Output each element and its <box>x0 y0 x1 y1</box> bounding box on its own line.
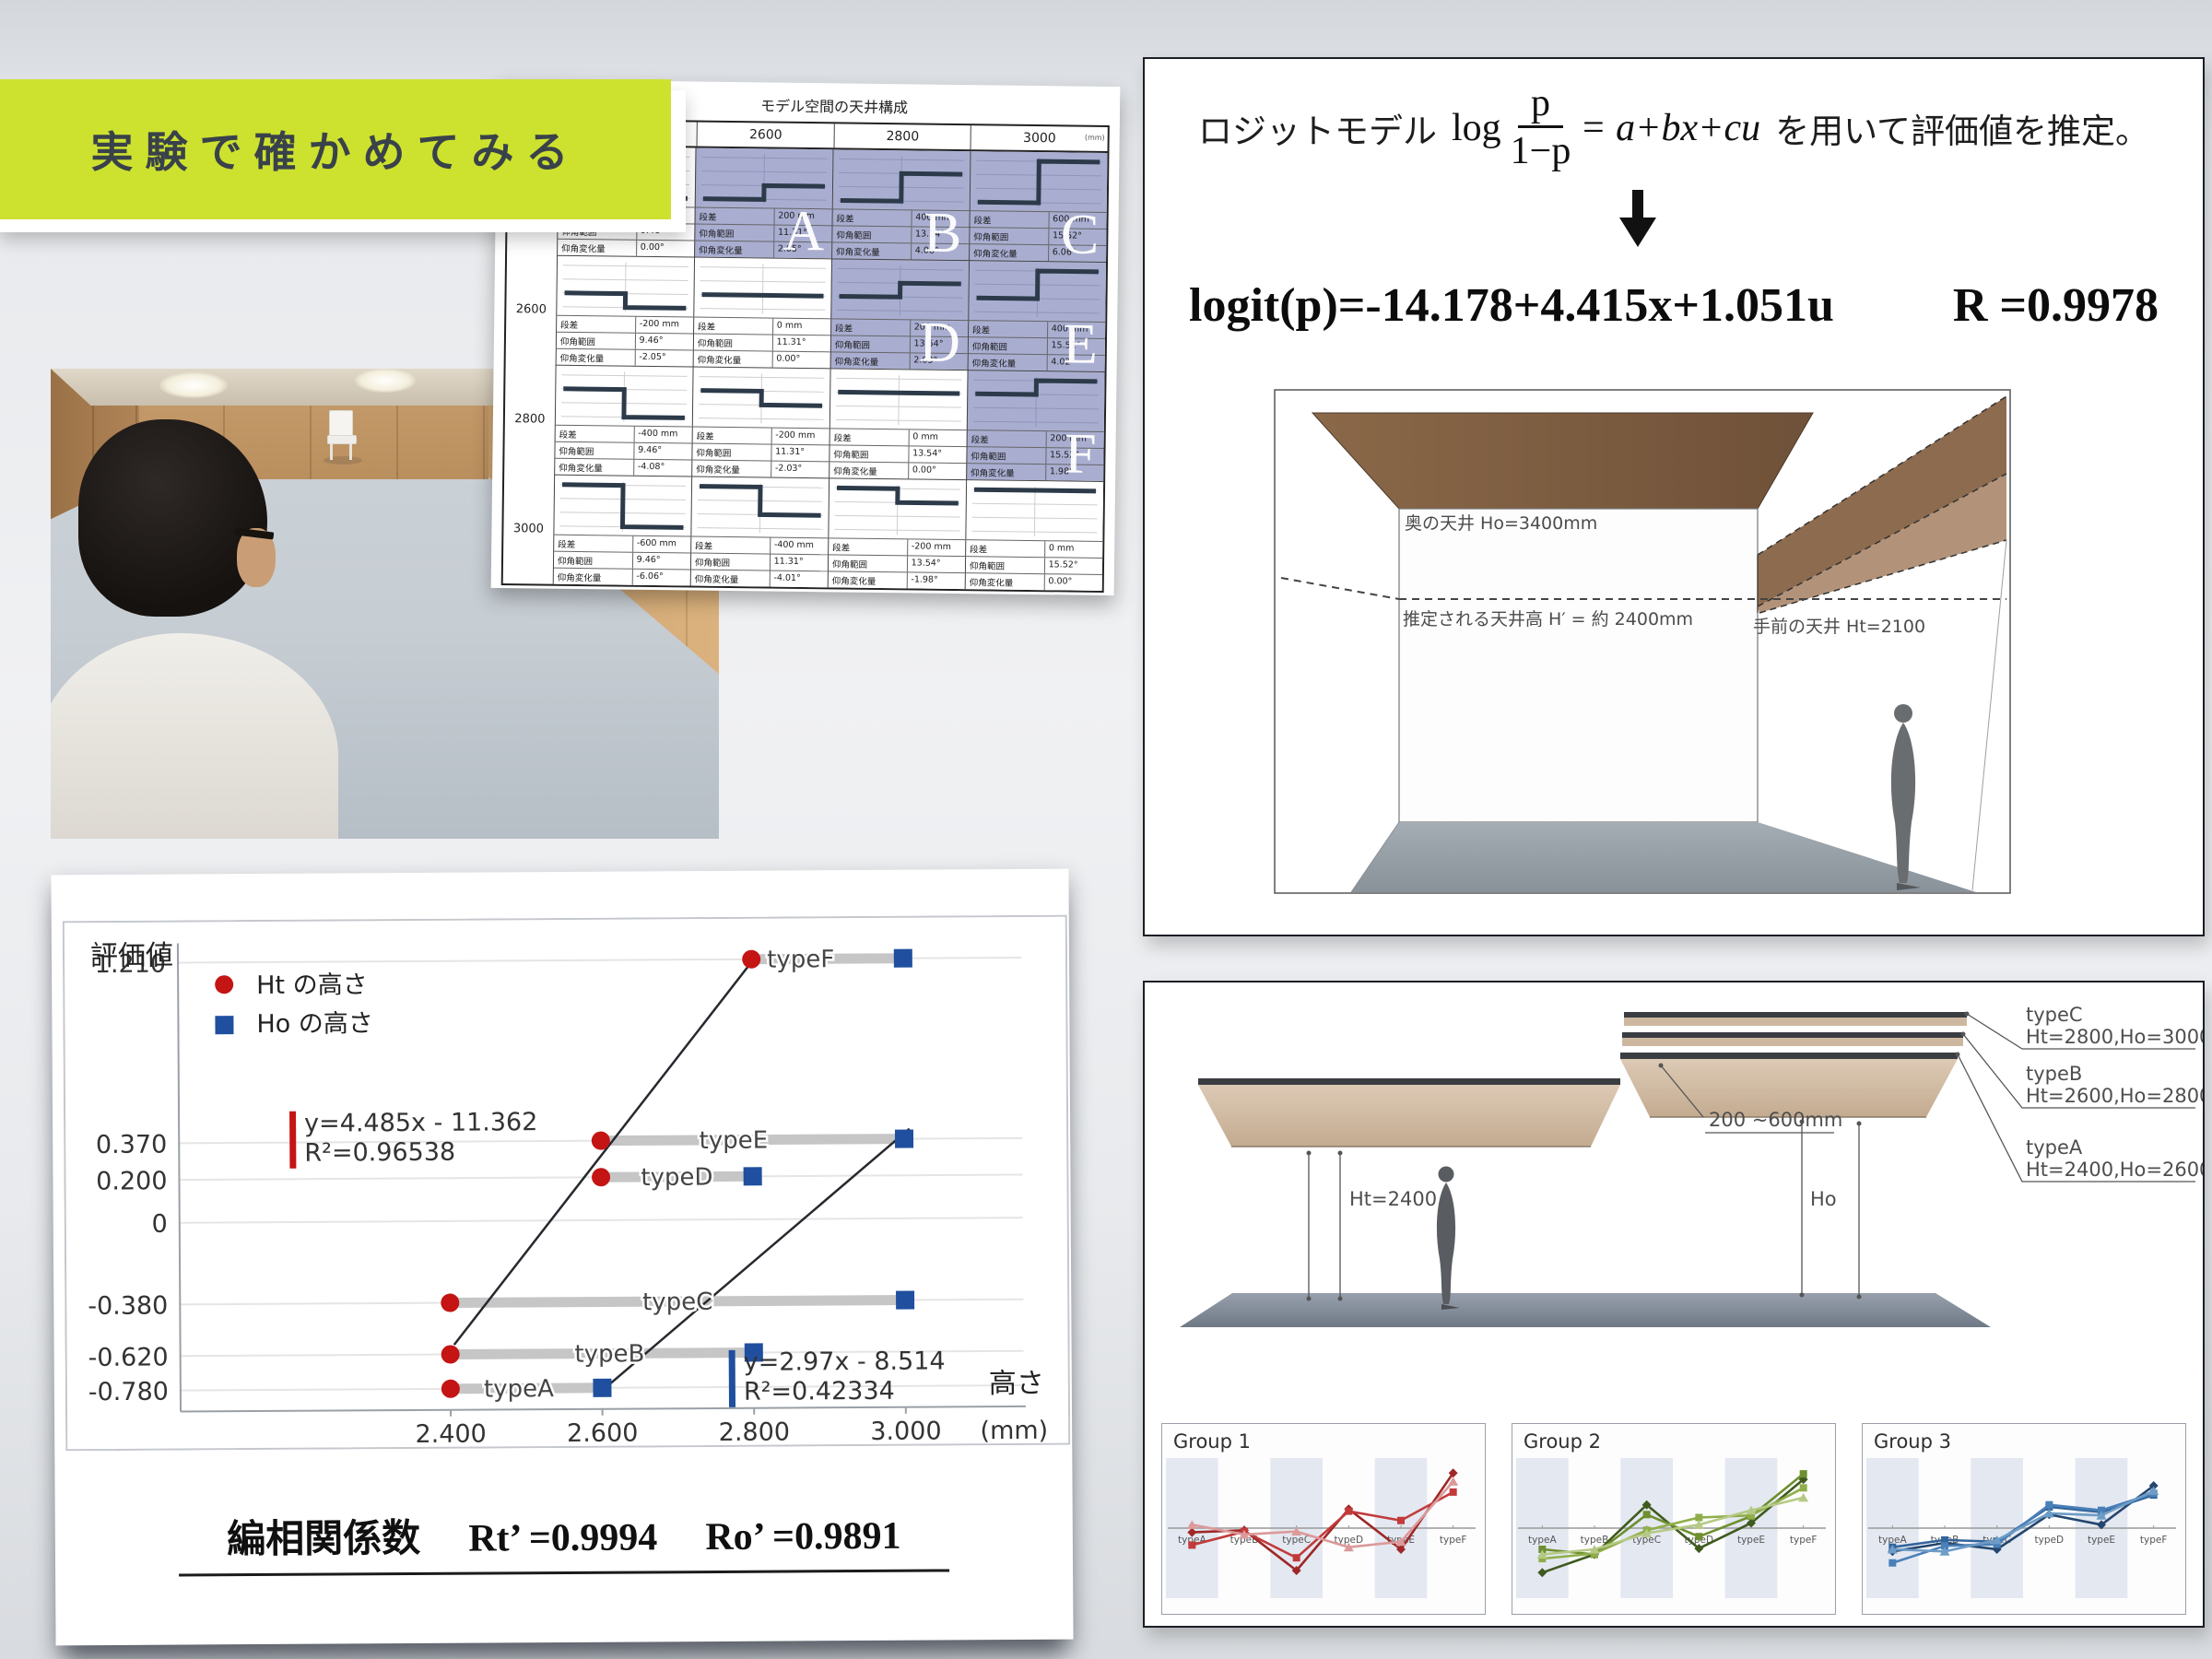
type-letter-F: F <box>1065 425 1097 482</box>
svg-text:typeD: typeD <box>2035 1535 2065 1546</box>
group-2-title: Group 2 <box>1512 1424 1835 1453</box>
row-header-3000: 3000 <box>503 474 554 584</box>
ho-marker-typeA <box>593 1379 611 1397</box>
svg-text:3.000: 3.000 <box>870 1417 941 1445</box>
ht-marker-typeD <box>592 1168 610 1186</box>
group-1-title: Group 1 <box>1162 1424 1485 1453</box>
low-ceiling-edge <box>1198 1078 1620 1085</box>
ceiling-cell: 段差-200 mm仰角範囲13.54°仰角変化量-1.98° <box>828 477 966 589</box>
series-label-typeB: typeB <box>574 1340 644 1368</box>
col-header-3000: 3000(mm) <box>971 125 1108 151</box>
measure-lines <box>1309 1121 1859 1300</box>
section-person-silhouette <box>1437 1167 1460 1311</box>
ceiling-cell: 段差-400 mm仰角範囲11.31°仰角変化量-4.01° <box>690 476 829 587</box>
ceiling-cell-D: 段差200 mm仰角範囲13.54°仰角変化量2.03°D <box>830 258 969 370</box>
ceiling-cell-C: 段差600 mm仰角範囲15.52°仰角変化量6.06°C <box>969 151 1107 262</box>
logit-equation-row: logit(p)=-14.178+4.415x+1.051u R =0.9978 <box>1189 278 2159 333</box>
ht-marker-typeE <box>592 1132 610 1150</box>
page-title: 実験で確かめてみる <box>91 119 581 180</box>
svg-text:0: 0 <box>151 1210 167 1239</box>
type-label-b-detail: Ht=2600,Ho=2800 <box>2026 1085 2203 1107</box>
ceiling-cell-E: 段差400 mm仰角範囲15.52°仰角変化量4.02°E <box>968 260 1106 371</box>
legend-ho-label: Ho の高さ <box>256 1009 373 1039</box>
ho-marker-typeC <box>896 1290 914 1309</box>
svg-text:R²=0.42334: R²=0.42334 <box>744 1377 895 1406</box>
ceiling-cell: 段差0 mm仰角範囲13.54°仰角変化量0.00° <box>829 368 967 479</box>
type-label-c-detail: Ht=2800,Ho=3000 <box>2026 1026 2203 1048</box>
intro-suffix: を用いて評価値を推定。 <box>1775 103 2149 153</box>
svg-text:2.600: 2.600 <box>567 1419 638 1448</box>
svg-text:2.800: 2.800 <box>719 1418 790 1446</box>
room-rendering: 奥の天井 Ho=3400mm 推定される天井高 H′ = 約 2400mm 手前… <box>1274 389 2011 894</box>
ht-dimension-label: Ht=2400 <box>1349 1188 1437 1210</box>
person-hair <box>78 419 267 617</box>
down-arrow-icon <box>1610 190 1665 249</box>
ho-marker-typeD <box>744 1167 762 1185</box>
logit-formula: log p 1−p = a+bx+cu <box>1452 83 1760 172</box>
ht-marker-typeA <box>441 1380 460 1398</box>
group-chart-1: Group 1 typeAtypeBtypeCtypeDtypeEtypeF <box>1161 1423 1486 1615</box>
typeB-ceiling-edge <box>1622 1032 1963 1038</box>
ceiling-cell: 段差-200 mm仰角範囲9.46°仰角変化量-2.05° <box>556 255 694 367</box>
svg-text:2.400: 2.400 <box>415 1420 486 1449</box>
r-value: R =0.9978 <box>1953 278 2159 333</box>
slide: モデル空間の天井構成 2400260028003000(mm)2400段差0 m… <box>0 0 2212 1659</box>
row-header-2800: 2800 <box>504 364 555 475</box>
ceiling-cell: 段差0 mm仰角範囲11.31°仰角変化量0.00° <box>693 257 831 369</box>
series-label-typeA: typeA <box>484 1375 554 1403</box>
type-letter-D: D <box>919 314 961 372</box>
section-floor <box>1180 1293 1991 1327</box>
svg-text:typeF: typeF <box>2140 1535 2168 1546</box>
person-shirt <box>51 633 338 839</box>
ceiling-cell: 段差0 mm仰角範囲15.52°仰角変化量0.00° <box>965 479 1103 591</box>
ceiling-cell: 段差-400 mm仰角範囲9.46°仰角変化量-4.08° <box>554 365 692 477</box>
ho-marker-typeE <box>895 1130 913 1148</box>
title-banner: 実験で確かめてみる <box>0 79 671 219</box>
ceiling-cell: 段差-600 mm仰角範囲9.46°仰角変化量-6.06° <box>553 475 691 586</box>
ho-marker-typeF <box>894 949 912 968</box>
correlation-footer: 編相関係数Rt’ =0.9994Ro’ =0.9891 <box>55 1503 1073 1578</box>
ceiling-cell-A: 段差200 mm仰角範囲11.31°仰角変化量2.05°A <box>694 148 832 259</box>
col-header-2800: 2800 <box>833 124 971 149</box>
far-ceiling-label: 奥の天井 Ho=3400mm <box>1405 513 1597 534</box>
series-label-typeE: typeE <box>700 1127 769 1155</box>
svg-text:typeE: typeE <box>1737 1535 1765 1546</box>
series-label-typeF: typeF <box>767 946 834 973</box>
series-label-typeC: typeC <box>642 1288 712 1316</box>
type-label-c-name: typeC <box>2026 1004 2083 1026</box>
near-ceiling-label: 手前の天井 Ht=2100 <box>1753 617 1925 637</box>
type-label-a-detail: Ht=2400,Ho=2600 <box>2026 1159 2203 1181</box>
log-text: log <box>1452 106 1501 150</box>
section-panel: 200 ~600mm Ht=2400 Ho typeC Ht=2800,Ho=3… <box>1143 981 2205 1628</box>
svg-text:typeF: typeF <box>1440 1535 1467 1546</box>
type-letter-E: E <box>1063 315 1099 372</box>
rt-value: Rt’ =0.9994 <box>468 1516 657 1559</box>
series-label-typeD: typeD <box>641 1164 712 1192</box>
svg-text:0.370: 0.370 <box>96 1131 167 1159</box>
typeC-ceiling <box>1624 1018 1967 1026</box>
svg-text:typeA: typeA <box>1528 1535 1557 1546</box>
type-label-a-name: typeA <box>2026 1136 2083 1159</box>
svg-text:typeF: typeF <box>1790 1535 1818 1546</box>
svg-text:-0.380: -0.380 <box>88 1291 168 1321</box>
typeB-ceiling <box>1622 1038 1963 1046</box>
legend-ho-marker <box>215 1016 233 1034</box>
ceiling-light <box>159 372 228 398</box>
table-unit: (mm) <box>1085 134 1105 142</box>
svg-text:0.200: 0.200 <box>96 1167 167 1195</box>
group-3-title: Group 3 <box>1863 1424 2185 1453</box>
ro-value: Ro’ =0.9891 <box>705 1515 900 1559</box>
ceiling-cell-B: 段差400 mm仰角範囲13.54°仰角変化量4.08°B <box>831 149 970 260</box>
type-letter-A: A <box>782 203 825 261</box>
ht-marker-typeB <box>441 1345 460 1363</box>
svg-text:y=4.485x - 11.362: y=4.485x - 11.362 <box>304 1108 537 1138</box>
svg-text:-0.620: -0.620 <box>88 1343 169 1372</box>
ht-marker-typeC <box>441 1293 459 1312</box>
group-chart-3: Group 3 typeAtypeBtypeCtypeDtypeEtypeF <box>1862 1423 2186 1615</box>
correlation-label: 編相関係数 <box>227 1518 420 1561</box>
ceiling-cell: 段差-200 mm仰角範囲11.31°仰角変化量-2.03° <box>691 367 829 478</box>
svg-text:高さ: 高さ <box>989 1368 1044 1400</box>
group-chart-2: Group 2 typeAtypeBtypeCtypeDtypeEtypeF <box>1512 1423 1836 1615</box>
low-ceiling <box>1198 1085 1620 1147</box>
typeA-ceiling-edge <box>1620 1053 1958 1059</box>
typeC-ceiling-edge <box>1624 1012 1967 1018</box>
ceiling-cell-F: 段差200 mm仰角範囲15.52°仰角変化量1.98°F <box>966 370 1104 481</box>
group-1-plot: typeAtypeBtypeCtypeDtypeEtypeF <box>1166 1454 1479 1604</box>
svg-text:-0.780: -0.780 <box>88 1378 169 1407</box>
svg-text:R²=0.96538: R²=0.96538 <box>304 1138 455 1168</box>
fraction: p 1−p <box>1511 83 1571 172</box>
svg-text:typeE: typeE <box>2088 1535 2115 1546</box>
logit-equation: logit(p)=-14.178+4.415x+1.051u <box>1189 278 1834 333</box>
intro-prefix: ロジットモデル <box>1198 103 1437 153</box>
estimated-height-label: 推定される天井高 H′ = 約 2400mm <box>1403 609 1693 629</box>
svg-text:(mm): (mm) <box>980 1417 1048 1445</box>
legend-ht-label: Ht の高さ <box>256 971 368 1000</box>
evaluation-chart: 1.2100.3700.2000-0.380-0.620-0.7802.4002… <box>63 915 1070 1452</box>
type-letter-B: B <box>924 205 962 263</box>
ceiling-light <box>355 369 416 393</box>
group-3-plot: typeAtypeBtypeCtypeDtypeEtypeF <box>1866 1454 2180 1604</box>
far-ceiling <box>1312 413 1813 509</box>
logit-panel: ロジットモデル log p 1−p = a+bx+cu を用いて評価値を推定。 … <box>1143 57 2205 936</box>
ho-dimension-label: Ho <box>1810 1188 1837 1210</box>
type-letter-C: C <box>1061 206 1100 264</box>
col-header-2600: 2600 <box>697 123 834 148</box>
evaluation-chart-card: 1.2100.3700.2000-0.380-0.620-0.7802.4002… <box>51 869 1073 1646</box>
svg-text:評価値: 評価値 <box>90 940 173 973</box>
formula-rhs: = a+bx+cu <box>1580 106 1760 150</box>
row-header-2600: 2600 <box>506 254 557 365</box>
type-label-b-name: typeB <box>2026 1063 2082 1085</box>
svg-text:typeC: typeC <box>1282 1535 1311 1546</box>
ht-marker-typeF <box>742 950 760 969</box>
observer-person <box>51 419 355 839</box>
svg-text:y=2.97x - 8.514: y=2.97x - 8.514 <box>744 1347 946 1376</box>
back-wall <box>1399 509 1758 822</box>
step-dimension-label: 200 ~600mm <box>1709 1109 1842 1131</box>
section-diagram: 200 ~600mm Ht=2400 Ho typeC Ht=2800,Ho=3… <box>1145 988 2203 1421</box>
legend-ht-marker <box>215 975 233 994</box>
group-2-plot: typeAtypeBtypeCtypeDtypeEtypeF <box>1516 1454 1830 1604</box>
logit-intro: ロジットモデル log p 1−p = a+bx+cu を用いて評価値を推定。 <box>1163 83 2184 172</box>
